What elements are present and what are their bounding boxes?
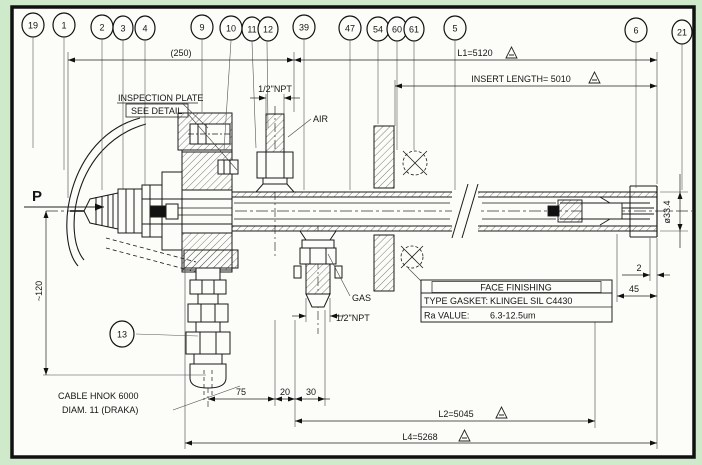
- dim-45: 45: [629, 284, 639, 294]
- balloon-number: 54: [373, 25, 383, 35]
- dim-l1: L1=5120: [457, 48, 492, 58]
- balloon-61: 61: [404, 17, 424, 41]
- balloon-13: 13: [110, 321, 134, 347]
- balloon-number: 5: [452, 24, 457, 34]
- balloon-1: 1: [53, 13, 75, 37]
- dim-30: 30: [306, 387, 316, 397]
- balloon-number: 1: [61, 21, 66, 31]
- balloon-9: 9: [191, 15, 213, 39]
- balloon-number: 3: [120, 24, 125, 34]
- dim-75: 75: [236, 387, 246, 397]
- pipe-break-symbol: [452, 184, 478, 238]
- balloon-number: 2: [99, 23, 104, 33]
- balloon-19: 19: [22, 13, 44, 37]
- dim-250: (250): [170, 48, 191, 58]
- balloon-number: 10: [226, 24, 236, 34]
- balloon-2: 2: [91, 15, 113, 39]
- balloon-12: 12: [258, 17, 278, 41]
- balloon-10: 10: [220, 16, 242, 40]
- balloon-number: 4: [142, 24, 147, 34]
- npt-gas-label: 1/2"NPT: [336, 313, 370, 323]
- balloon-3: 3: [113, 16, 133, 40]
- balloon-number: 39: [299, 23, 309, 33]
- npt-air-label: 1/2"NPT: [258, 84, 292, 94]
- ra-value: 6.3-12.5um: [490, 311, 536, 321]
- see-detail-label: SEE DETAIL: [131, 106, 182, 116]
- gasket-value: KLINGEL SIL C4430: [490, 296, 572, 306]
- balloon-4: 4: [135, 16, 155, 40]
- balloon-number: 6: [633, 26, 638, 36]
- gas-label: GAS: [352, 293, 371, 303]
- balloon-39: 39: [293, 15, 315, 39]
- dim-insert-length: INSERT LENGTH= 5010: [471, 74, 570, 84]
- dim-diameter: ø33.4: [662, 200, 672, 223]
- balloon-number: 9: [199, 23, 204, 33]
- ra-label: Ra VALUE:: [424, 311, 469, 321]
- table-title: FACE FINISHING: [480, 283, 552, 293]
- balloon-54: 54: [367, 17, 389, 41]
- dim-20: 20: [280, 387, 290, 397]
- dim-2: 2: [636, 263, 641, 273]
- balloon-5: 5: [444, 16, 466, 40]
- balloon-number: 13: [117, 330, 127, 340]
- balloon-number: 19: [28, 21, 38, 31]
- balloon-number: 11: [247, 25, 256, 35]
- air-label: AIR: [313, 114, 329, 124]
- cable-label-line1: CABLE HNOK 6000: [58, 391, 139, 401]
- balloon-47: 47: [339, 16, 361, 40]
- inspection-plate-label: INSPECTION PLATE: [118, 93, 203, 103]
- dim-120: ~120: [34, 281, 44, 301]
- balloon-number: 61: [409, 25, 419, 35]
- engineering-drawing-page: 19 1 2 3 4 9 10 11 12 39 47 54 60 61 5 6…: [0, 0, 702, 465]
- balloon-number: 21: [677, 28, 687, 38]
- pressure-direction-label: P: [32, 188, 42, 205]
- cable-label-line2: DIAM. 11 (DRAKA): [62, 405, 138, 415]
- balloon-number: 12: [263, 25, 273, 35]
- balloon-number: 47: [345, 24, 355, 34]
- balloon-21: 21: [672, 20, 692, 44]
- dim-l2: L2=5045: [438, 409, 473, 419]
- drawing-canvas: 19 1 2 3 4 9 10 11 12 39 47 54 60 61 5 6…: [0, 0, 702, 465]
- gasket-label: TYPE GASKET:: [424, 296, 488, 306]
- balloon-6: 6: [625, 18, 647, 42]
- balloon-number: 60: [392, 25, 402, 35]
- dim-l4: L4=5268: [402, 432, 437, 442]
